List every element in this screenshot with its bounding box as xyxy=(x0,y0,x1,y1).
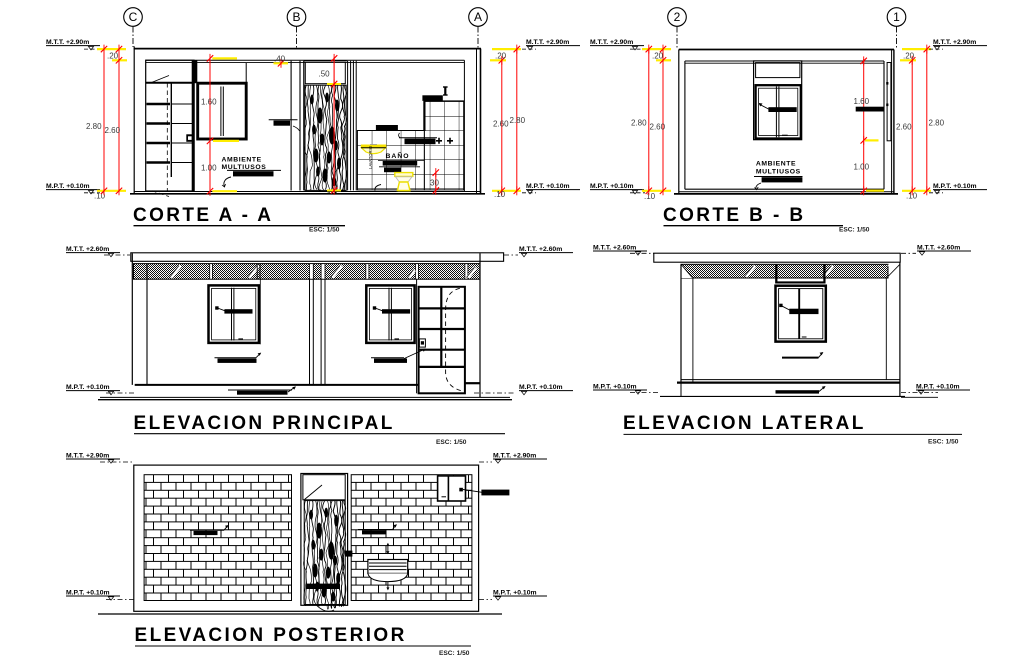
svg-text:M.P.T. +0.10m: M.P.T. +0.10m xyxy=(593,384,637,391)
svg-text:M.T.T. +2.90m: M.T.T. +2.90m xyxy=(66,453,109,460)
svg-text:ESC: 1/50: ESC: 1/50 xyxy=(439,650,470,657)
svg-text:1.60: 1.60 xyxy=(201,98,217,107)
svg-text:M.T.T. +2.60m: M.T.T. +2.60m xyxy=(66,246,109,253)
svg-text:.40: .40 xyxy=(274,55,286,64)
svg-text:30: 30 xyxy=(430,179,439,188)
svg-text:ELEVACION LATERAL: ELEVACION LATERAL xyxy=(623,413,866,434)
svg-text:.10: .10 xyxy=(494,190,506,199)
svg-text:ESC: 1/50: ESC: 1/50 xyxy=(436,439,467,446)
svg-text:1: 1 xyxy=(893,10,900,24)
svg-text:M.P.T. +0.10m: M.P.T. +0.10m xyxy=(933,183,977,190)
svg-text:ESC: 1/50: ESC: 1/50 xyxy=(928,439,959,446)
svg-text:M.P.T. +0.10m: M.P.T. +0.10m xyxy=(66,590,110,597)
svg-text:2.60: 2.60 xyxy=(105,126,121,135)
svg-text:.20: .20 xyxy=(903,52,915,61)
svg-text:BAÑO: BAÑO xyxy=(386,151,410,160)
svg-text:M.T.T. +2.90m: M.T.T. +2.90m xyxy=(590,39,633,46)
svg-text:CORTE A - A: CORTE A - A xyxy=(133,205,273,226)
svg-text:ELEVACION POSTERIOR: ELEVACION POSTERIOR xyxy=(135,625,407,646)
svg-text:LAVATORIO: LAVATORIO xyxy=(368,145,373,169)
svg-text:2.60: 2.60 xyxy=(896,123,912,132)
svg-text:1.00: 1.00 xyxy=(854,163,870,172)
svg-text:M.P.T. +0.10m: M.P.T. +0.10m xyxy=(590,183,634,190)
svg-text:M.T.T. +2.90m: M.T.T. +2.90m xyxy=(493,453,536,460)
svg-text:M.P.T. +0.10m: M.P.T. +0.10m xyxy=(493,590,537,597)
svg-text:ESC: 1/50: ESC: 1/50 xyxy=(839,227,870,234)
svg-text:M.T.T. +2.60m: M.T.T. +2.60m xyxy=(917,245,960,252)
svg-text:A: A xyxy=(474,10,482,24)
svg-text:M.T.T. +2.60m: M.T.T. +2.60m xyxy=(593,245,636,252)
svg-text:2: 2 xyxy=(674,10,681,24)
svg-text:MULTIUSOS: MULTIUSOS xyxy=(756,169,801,176)
svg-text:M.P.T. +0.10m: M.P.T. +0.10m xyxy=(526,183,570,190)
svg-text:.10: .10 xyxy=(906,192,918,201)
svg-text:.20: .20 xyxy=(495,52,507,61)
svg-text:1.00: 1.00 xyxy=(201,164,217,173)
svg-text:AMBIENTE: AMBIENTE xyxy=(222,157,262,164)
svg-text:C: C xyxy=(129,10,138,24)
svg-text:M.T.T. +2.90m: M.T.T. +2.90m xyxy=(526,39,569,46)
svg-text:M.P.T. +0.10m: M.P.T. +0.10m xyxy=(916,384,960,391)
svg-text:.20: .20 xyxy=(107,52,119,61)
svg-text:M.T.T. +2.90m: M.T.T. +2.90m xyxy=(933,39,976,46)
svg-text:2.60: 2.60 xyxy=(650,123,666,132)
svg-text:M.P.T. +0.10m: M.P.T. +0.10m xyxy=(66,384,110,391)
svg-text:B: B xyxy=(292,10,300,24)
svg-text:.20: .20 xyxy=(652,52,664,61)
svg-text:.50: .50 xyxy=(319,70,331,79)
svg-text:ESC: 1/50: ESC: 1/50 xyxy=(309,227,340,234)
svg-text:2.80: 2.80 xyxy=(631,119,647,128)
svg-text:M.P.T. +0.10m: M.P.T. +0.10m xyxy=(46,183,90,190)
svg-text:M.P.T. +0.10m: M.P.T. +0.10m xyxy=(519,384,563,391)
svg-text:CORTE B - B: CORTE B - B xyxy=(663,205,806,226)
svg-text:1.60: 1.60 xyxy=(854,97,870,106)
svg-text:M.T.T. +2.60m: M.T.T. +2.60m xyxy=(519,246,562,253)
svg-text:2.80: 2.80 xyxy=(929,119,945,128)
svg-text:M.T.T. +2.90m: M.T.T. +2.90m xyxy=(46,39,89,46)
svg-text:2.80: 2.80 xyxy=(510,116,526,125)
svg-text:2.60: 2.60 xyxy=(493,120,509,129)
svg-text:2.80: 2.80 xyxy=(86,122,102,131)
svg-text:ELEVACION PRINCIPAL: ELEVACION PRINCIPAL xyxy=(134,413,395,434)
svg-text:AMBIENTE: AMBIENTE xyxy=(756,161,796,168)
